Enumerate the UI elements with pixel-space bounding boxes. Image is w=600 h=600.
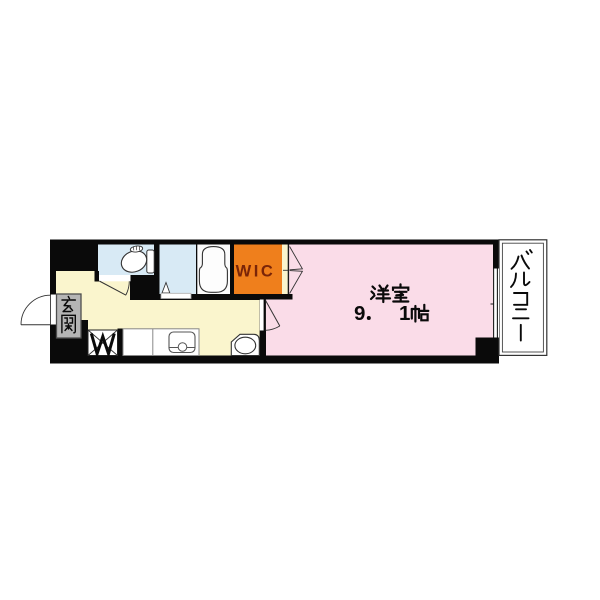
svg-text:9: 9	[354, 302, 365, 325]
svg-text:WIC: WIC	[236, 263, 276, 281]
svg-text:1: 1	[399, 302, 410, 325]
